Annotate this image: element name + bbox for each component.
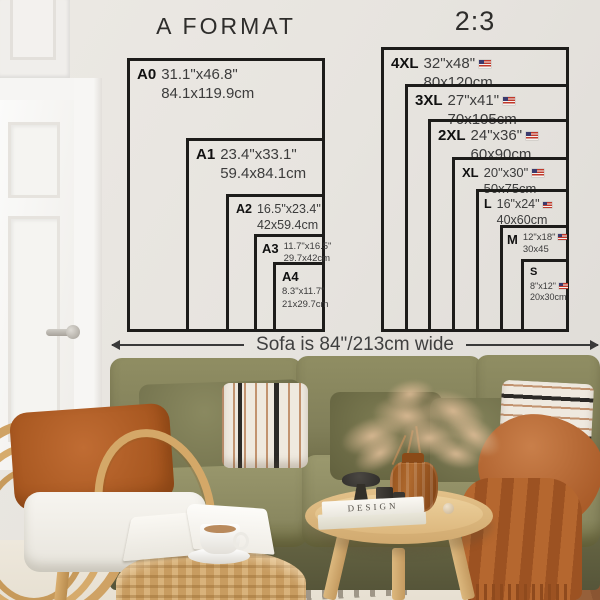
size-inches: 20"x30" <box>484 165 529 180</box>
size-code: A4 <box>282 269 322 285</box>
size-guide-image: A FORMAT A0 31.1"x46.8" 84.1x119.9cm A1 … <box>0 0 600 600</box>
us-flag-icon <box>503 97 515 105</box>
ratio-title: 2:3 <box>381 6 569 37</box>
us-flag-icon <box>479 60 491 68</box>
size-inches: 32"x48" <box>424 55 476 72</box>
size-cm: 42x59.4cm <box>257 218 321 234</box>
size-box-s: S 8"x12" 20x30cm <box>521 259 569 332</box>
door-panel-upper <box>8 122 60 198</box>
book-spine-title: DESIGN <box>347 501 398 514</box>
size-code: A0 <box>137 66 156 104</box>
size-code: M <box>507 232 518 257</box>
size-cm: 59.4x84.1cm <box>220 165 306 184</box>
size-inches: 8"x12" <box>530 281 556 291</box>
size-inches: 23.4"x33.1" <box>220 146 306 165</box>
size-code: L <box>484 197 492 228</box>
wooden-bead <box>443 503 454 514</box>
size-inches: 16"x24" <box>497 197 540 211</box>
a-format-title: A FORMAT <box>127 13 325 40</box>
size-inches: 12"x18" <box>523 232 556 243</box>
us-flag-icon <box>558 234 567 240</box>
size-cm: 84.1x119.9cm <box>161 85 254 104</box>
throw-fringe <box>468 584 572 600</box>
transom-molding <box>10 0 56 60</box>
coffee-cup <box>200 524 240 554</box>
us-flag-icon <box>543 202 552 208</box>
size-code: A2 <box>236 202 252 233</box>
size-inches: 24"x36" <box>471 127 523 144</box>
size-inches: 27"x41" <box>448 92 500 109</box>
arrow-left-icon <box>112 344 244 346</box>
door-handle-icon <box>46 329 76 336</box>
size-inches: 31.1"x46.8" <box>161 66 254 85</box>
throw-blanket <box>462 478 582 600</box>
us-flag-icon <box>526 132 538 140</box>
sofa-width-label: Sofa is 84"/213cm wide <box>256 334 454 356</box>
us-flag-icon <box>532 169 544 177</box>
size-code: A1 <box>196 146 215 184</box>
us-flag-icon <box>559 283 568 289</box>
arrow-right-icon <box>466 344 598 346</box>
size-cm: 20x30cm <box>530 292 566 304</box>
size-inches: 8.3"x11.7" <box>282 286 322 298</box>
sofa-width-annotation: Sofa is 84"/213cm wide <box>112 337 598 353</box>
transom-panel <box>0 0 70 78</box>
size-inches: 16.5"x23.4" <box>257 202 321 218</box>
striped-pillow <box>222 383 308 468</box>
size-box-a4: A4 8.3"x11.7" 21x29.7cm <box>273 262 325 332</box>
size-inches: 11.7"x16.5" <box>284 241 332 253</box>
black-pedestal-bowl <box>342 472 380 487</box>
size-code: S <box>530 266 566 280</box>
size-cm: 30x45 <box>523 244 568 256</box>
size-cm: 21x29.7cm <box>282 299 322 311</box>
table-leg <box>392 548 405 600</box>
